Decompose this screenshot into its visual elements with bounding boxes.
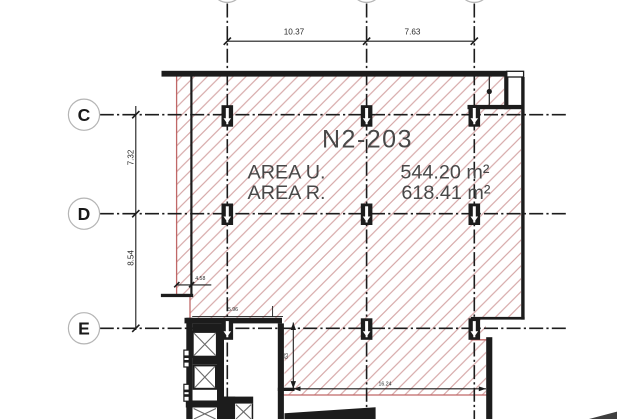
svg-text:AREA R.: AREA R. <box>248 182 326 204</box>
svg-text:16.24: 16.24 <box>379 382 392 388</box>
svg-text:63: 63 <box>284 353 290 359</box>
svg-text:7.63: 7.63 <box>405 27 421 36</box>
svg-text:D: D <box>78 204 91 224</box>
svg-text:E: E <box>78 319 90 339</box>
svg-text:AREA U.: AREA U. <box>248 161 326 183</box>
svg-text:4.58: 4.58 <box>195 276 205 282</box>
svg-text:618.41 m²: 618.41 m² <box>401 182 490 204</box>
svg-text:C: C <box>78 105 91 125</box>
svg-text:544.20 m²: 544.20 m² <box>400 161 489 183</box>
svg-text:10.37: 10.37 <box>284 27 305 36</box>
svg-text:N2-203: N2-203 <box>322 125 413 153</box>
svg-text:5.96: 5.96 <box>228 307 238 313</box>
svg-text:7.32: 7.32 <box>127 149 136 165</box>
svg-text:8.54: 8.54 <box>127 250 136 266</box>
